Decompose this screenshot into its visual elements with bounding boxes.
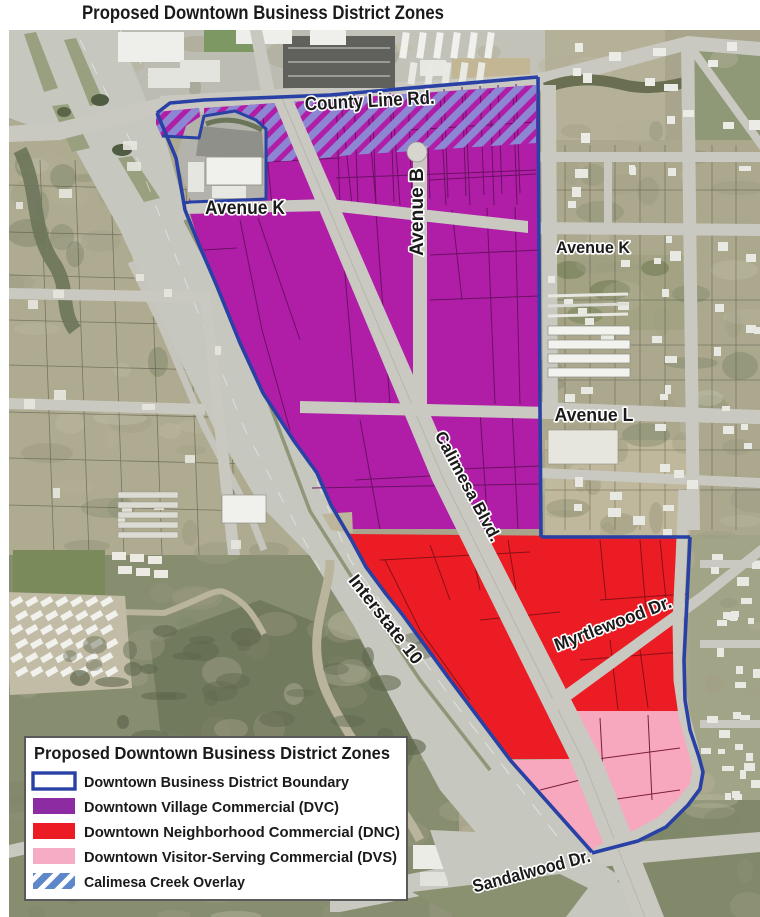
svg-text:Avenue B: Avenue B	[407, 168, 428, 256]
svg-text:Proposed Downtown Business Dis: Proposed Downtown Business District Zone…	[34, 743, 390, 763]
svg-text:Calimesa Creek Overlay: Calimesa Creek Overlay	[84, 874, 246, 891]
svg-text:Downtown Visitor-Serving Comme: Downtown Visitor-Serving Commercial (DVS…	[84, 849, 397, 866]
svg-text:Avenue L: Avenue L	[555, 405, 634, 425]
svg-text:Downtown Village Commercial (D: Downtown Village Commercial (DVC)	[84, 799, 339, 816]
svg-text:Downtown Neighborhood Commerci: Downtown Neighborhood Commercial (DNC)	[84, 824, 400, 841]
svg-text:Avenue K: Avenue K	[205, 198, 285, 219]
svg-text:Downtown Business District Bou: Downtown Business District Boundary	[84, 774, 350, 791]
svg-text:Avenue K: Avenue K	[556, 238, 631, 257]
svg-text:Proposed Downtown Business Dis: Proposed Downtown Business District Zone…	[82, 3, 444, 24]
